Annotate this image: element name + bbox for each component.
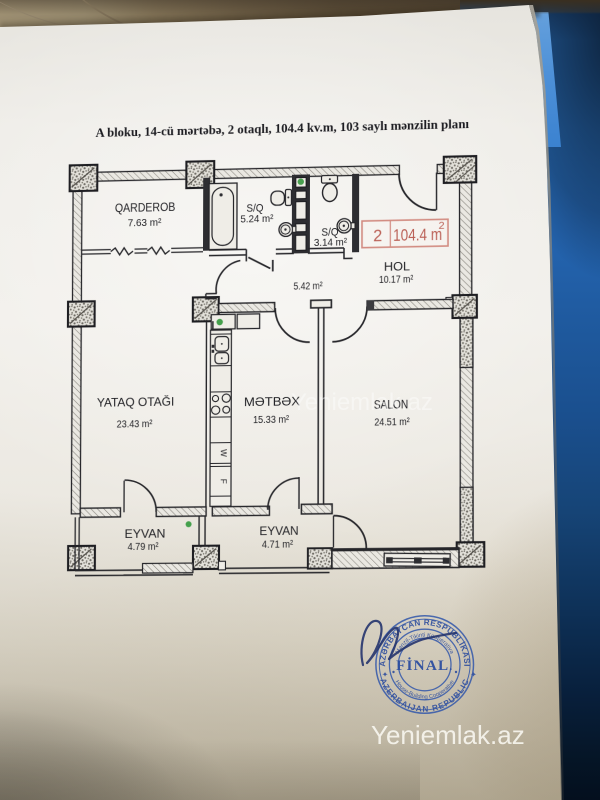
svg-text:W: W bbox=[219, 449, 228, 457]
svg-text:F: F bbox=[219, 479, 228, 484]
svg-text:23.43 m²: 23.43 m² bbox=[117, 419, 153, 431]
svg-text:104.4 m: 104.4 m bbox=[393, 224, 442, 245]
svg-text:2: 2 bbox=[439, 221, 445, 232]
svg-text:YATAQ OTAĞI: YATAQ OTAĞI bbox=[97, 395, 174, 409]
svg-text:5.42 m²: 5.42 m² bbox=[293, 281, 323, 293]
svg-text:A bloku, 14-cü mərtəbə, 2 otaq: A bloku, 14-cü mərtəbə, 2 otaqlı, 104.4 … bbox=[96, 117, 470, 140]
svg-text:5.24 m²: 5.24 m² bbox=[240, 214, 274, 226]
svg-text:HOL: HOL bbox=[384, 260, 411, 274]
svg-text:EYVAN: EYVAN bbox=[125, 528, 166, 541]
svg-text:10.17 m²: 10.17 m² bbox=[379, 274, 414, 286]
svg-text:EYVAN: EYVAN bbox=[259, 526, 298, 539]
svg-text:4.71 m²: 4.71 m² bbox=[262, 539, 294, 551]
svg-text:QARDEROB: QARDEROB bbox=[115, 201, 176, 216]
svg-text:15.33 m²: 15.33 m² bbox=[253, 415, 290, 427]
svg-text:24.51 m²: 24.51 m² bbox=[374, 417, 410, 429]
svg-text:2: 2 bbox=[373, 226, 382, 246]
svg-text:7.63 m²: 7.63 m² bbox=[128, 217, 162, 229]
svg-text:4.79 m²: 4.79 m² bbox=[128, 542, 160, 554]
